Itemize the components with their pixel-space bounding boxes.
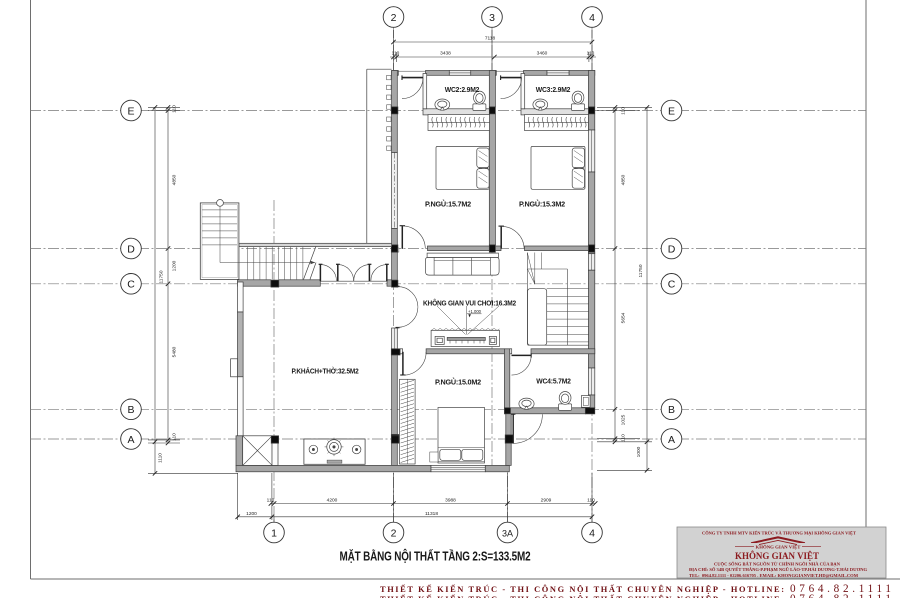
svg-text:A: A	[668, 434, 675, 446]
svg-text:1200: 1200	[172, 260, 178, 271]
svg-text:D: D	[668, 243, 676, 255]
svg-text:11318: 11318	[425, 511, 438, 517]
svg-text:4850: 4850	[172, 174, 178, 185]
svg-text:110: 110	[392, 51, 400, 57]
svg-text:KHÔNG GIAN VIỆT: KHÔNG GIAN VIỆT	[735, 549, 820, 562]
svg-text:11750: 11750	[638, 264, 644, 277]
svg-text:4: 4	[589, 12, 595, 24]
svg-text:WC3:2.9M2: WC3:2.9M2	[536, 87, 571, 94]
svg-text:110: 110	[587, 498, 595, 504]
svg-text:P.NGỦ:15.0M2: P.NGỦ:15.0M2	[435, 377, 481, 386]
svg-text:P.NGỦ:15.3M2: P.NGỦ:15.3M2	[519, 200, 565, 209]
svg-text:5480: 5480	[172, 346, 178, 357]
svg-text:3A: 3A	[502, 528, 513, 538]
svg-text:KHÔNG GIAN VIỆT: KHÔNG GIAN VIỆT	[756, 545, 801, 550]
svg-text:1110: 1110	[158, 453, 164, 463]
svg-text:110: 110	[172, 105, 178, 113]
svg-text:MẶT BẰNG NỘI THẤT TẦNG 2:S=133: MẶT BẰNG NỘI THẤT TẦNG 2:S=133.5M2	[340, 549, 531, 564]
svg-text:3: 3	[489, 12, 495, 24]
svg-text:KHÔNG GIAN VUI CHƠI:16.3M2: KHÔNG GIAN VUI CHƠI:16.3M2	[423, 298, 516, 307]
svg-text:2: 2	[391, 12, 397, 24]
svg-text:+1.000: +1.000	[468, 309, 482, 314]
svg-text:2909: 2909	[541, 498, 552, 504]
svg-text:110: 110	[621, 434, 627, 442]
svg-text:3460: 3460	[537, 51, 548, 57]
svg-text:1200: 1200	[246, 511, 257, 517]
svg-text:110: 110	[621, 107, 627, 115]
svg-text:E: E	[668, 105, 675, 117]
svg-text:3988: 3988	[445, 498, 456, 504]
svg-text:1000: 1000	[636, 446, 642, 457]
svg-text:WC4:5.7M2: WC4:5.7M2	[536, 379, 571, 386]
svg-text:THIẾT KẾ KIẾN TRÚC - THI CÔNG: THIẾT KẾ KIẾN TRÚC - THI CÔNG NỘI THẤT C…	[380, 584, 784, 594]
svg-text:B: B	[127, 404, 134, 416]
svg-text:THIẾT KẾ KIẾN TRÚC - THI CÔNG: THIẾT KẾ KIẾN TRÚC - THI CÔNG NỘI THẤT C…	[380, 594, 784, 598]
svg-text:4: 4	[589, 527, 595, 539]
svg-text:P.NGỦ:15.7M2: P.NGỦ:15.7M2	[425, 200, 471, 209]
svg-text:110: 110	[172, 433, 178, 441]
svg-text:TEL: 0964.82.1111 - 02206.616: TEL: 0964.82.1111 - 02206.616705 . EMAIL…	[689, 573, 859, 578]
svg-text:110: 110	[587, 51, 595, 57]
svg-text:C: C	[668, 279, 676, 291]
svg-text:5654: 5654	[621, 312, 627, 323]
svg-text:WC2:2.9M2: WC2:2.9M2	[445, 87, 480, 94]
svg-text:C: C	[127, 279, 135, 291]
svg-text:B: B	[668, 404, 675, 416]
svg-text:CÔNG TY TNHH MTV KIẾN TRÚC VÀ: CÔNG TY TNHH MTV KIẾN TRÚC VÀ THƯƠNG MẠI…	[702, 531, 856, 536]
svg-text:1: 1	[271, 527, 277, 539]
svg-text:3438: 3438	[440, 51, 451, 57]
svg-text:E: E	[127, 105, 134, 117]
svg-text:110: 110	[267, 498, 275, 504]
svg-text:11750: 11750	[159, 270, 165, 283]
svg-text:CUỘC SỐNG BẮT NGUỒN TỪ CHÍNH N: CUỘC SỐNG BẮT NGUỒN TỪ CHÍNH NGÔI NHÀ CỦ…	[714, 560, 841, 566]
svg-text:7118: 7118	[485, 35, 496, 41]
svg-text:D: D	[127, 243, 135, 255]
svg-text:P.KHÁCH+THỜ:32.5M2: P.KHÁCH+THỜ:32.5M2	[292, 367, 359, 376]
svg-text:4850: 4850	[621, 174, 627, 185]
svg-text:1025: 1025	[621, 414, 627, 425]
svg-text:ĐỊA CHỈ: SỐ 34B QUYẾT THẮNG-P.: ĐỊA CHỈ: SỐ 34B QUYẾT THẮNG-P.PHẠM NGŨ L…	[689, 566, 867, 572]
svg-text:A: A	[127, 434, 134, 446]
svg-text:2: 2	[391, 527, 397, 539]
svg-text:4200: 4200	[327, 498, 338, 504]
